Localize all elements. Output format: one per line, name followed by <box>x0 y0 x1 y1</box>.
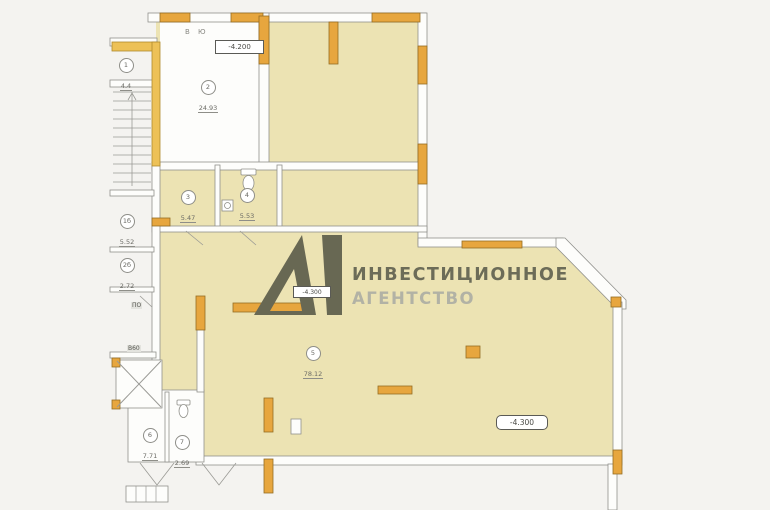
room-number: 1б <box>123 217 131 225</box>
elevation-mark: -4.200 <box>215 40 264 54</box>
lintel-top-3 <box>372 13 420 22</box>
wall-left-col-6 <box>110 352 156 358</box>
room-number-badge: 7 <box>175 435 190 450</box>
wall-left-col-3 <box>110 190 154 196</box>
stair-frame-top <box>112 42 157 51</box>
room-number-badge: 2б <box>120 258 135 273</box>
room-area: 24.93 <box>198 104 219 113</box>
elevation-mark: -4.300 <box>496 415 548 430</box>
room-area: 7.71 <box>142 452 158 461</box>
room-number: 5 <box>311 349 315 357</box>
axis-label: В Ю <box>185 28 209 36</box>
stub-hall-c <box>196 296 205 330</box>
stair-frame-right <box>152 42 160 166</box>
wall-bottom <box>196 456 622 465</box>
room-number-badge: 1б <box>120 214 135 229</box>
wall-right-lower <box>613 302 622 464</box>
room-number: 2б <box>123 261 131 269</box>
room-number: 6 <box>148 431 152 439</box>
room-number: 2 <box>206 83 210 91</box>
toilet-tank-room4 <box>241 169 256 175</box>
room-number-badge: 2 <box>201 80 216 95</box>
lintel-right-bottom <box>613 450 622 474</box>
watermark-brand-line2: АГЕНТСТВО <box>352 289 475 308</box>
room-number: 7 <box>180 438 184 446</box>
room-area: 5.53 <box>239 212 255 221</box>
elevation-mark: -4.300 <box>293 286 331 298</box>
room-area: 4.4 <box>120 82 132 91</box>
lintel-diagonal-end <box>611 297 621 307</box>
lintel-hall-small <box>378 386 412 394</box>
door-mark: ПО <box>131 302 142 309</box>
room-label: 2 24.93 <box>188 80 228 114</box>
room-label: 2б 2.72 <box>107 258 147 292</box>
room-number-badge: 1 <box>119 58 134 73</box>
stub-top-vertical <box>329 22 338 64</box>
room-number: 3 <box>186 193 190 201</box>
wall-partition-4-hall <box>277 165 282 231</box>
room-label: 3 5.47 <box>168 190 208 224</box>
door-mark: В60 <box>127 345 141 352</box>
hall-small-door-block <box>291 419 301 434</box>
room-label: 4 5.53 <box>227 188 267 222</box>
wall-under-room2 <box>152 162 427 170</box>
wall-partition-3-4 <box>215 165 220 231</box>
room-number-badge: 4 <box>240 188 255 203</box>
watermark-brand-line1: ИНВЕСТИЦИОННОЕ <box>352 265 569 285</box>
steps-box <box>126 486 168 502</box>
stub-hall-a <box>264 398 273 432</box>
room-label: 5 78.12 <box>293 346 333 380</box>
door-swing-entry-2 <box>202 463 236 485</box>
floor-plan-page: В Ю -4.200 -4.300 -4.300 1 4.4 2 24.93 3… <box>0 0 770 510</box>
room-label: 1б 5.52 <box>107 214 147 248</box>
wall-rooms67-right-ext <box>197 328 204 392</box>
room-number-badge: 3 <box>181 190 196 205</box>
toilet-icon-room7 <box>179 405 188 418</box>
stub-hall-b <box>264 459 273 493</box>
wall-hall-left <box>152 162 160 394</box>
room-area: 2.72 <box>119 282 135 291</box>
room-number-badge: 6 <box>143 428 158 443</box>
room-number: 4 <box>245 191 249 199</box>
room-area: 5.52 <box>119 238 135 247</box>
room-label: 7 2.69 <box>162 435 202 469</box>
room-area: 78.12 <box>303 370 324 379</box>
room-area: 2.69 <box>174 459 190 468</box>
column-square <box>466 346 480 358</box>
room-number: 1 <box>124 61 128 69</box>
room-number-badge: 5 <box>306 346 321 361</box>
lintel-right-section <box>462 241 522 248</box>
room-label: 1 4.4 <box>106 58 146 92</box>
lintel-top-1 <box>160 13 190 22</box>
lintel-right-wall-2 <box>418 144 427 184</box>
staircase <box>113 92 151 186</box>
room-area: 5.47 <box>180 214 196 223</box>
lintel-right-wall-1 <box>418 46 427 84</box>
wall-rooms34-bottom <box>152 226 427 232</box>
lintel-top-2 <box>231 13 263 22</box>
